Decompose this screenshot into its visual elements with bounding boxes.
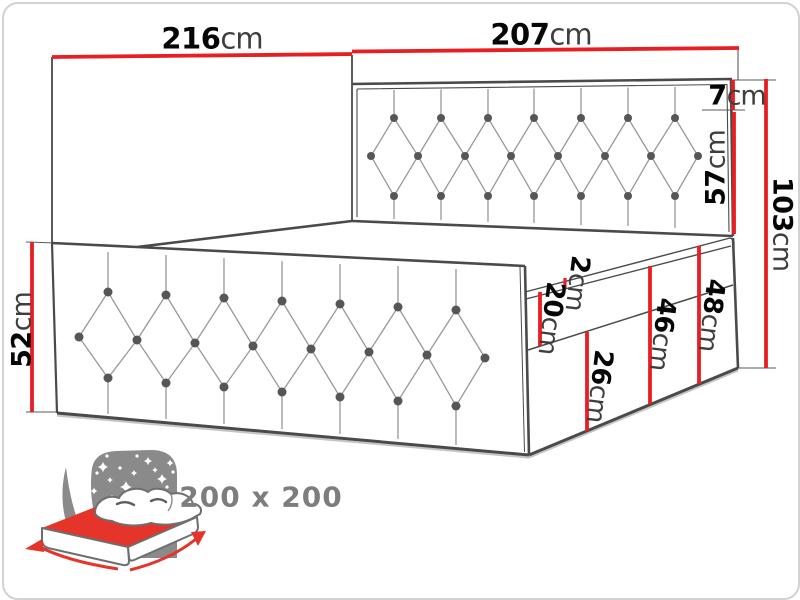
headboard-buttons	[367, 114, 702, 200]
dimension-label-side-length: 216cm	[161, 25, 262, 54]
headboard	[352, 79, 733, 236]
dimension-label-headboard-panel: 57cm	[703, 130, 730, 206]
side-panel	[52, 243, 529, 455]
side-panel-tufting	[79, 252, 485, 445]
mattress-deck	[137, 221, 734, 299]
mattress-size-label: 200 x 200	[179, 481, 342, 514]
dimension-label-headboard-width: 207cm	[490, 21, 591, 50]
dimension-label-total-height: 103cm	[769, 177, 796, 271]
diagram-page: 216cm 207cm 7cm 57cm 103cm 52cm 2cm 20cm…	[0, 0, 800, 600]
dimension-lines	[32, 48, 766, 431]
side-panel-buttons	[75, 288, 490, 411]
dimension-label-side-panel-height: 52cm	[9, 292, 36, 368]
dimension-label-headboard-top-frame: 7cm	[708, 83, 765, 110]
